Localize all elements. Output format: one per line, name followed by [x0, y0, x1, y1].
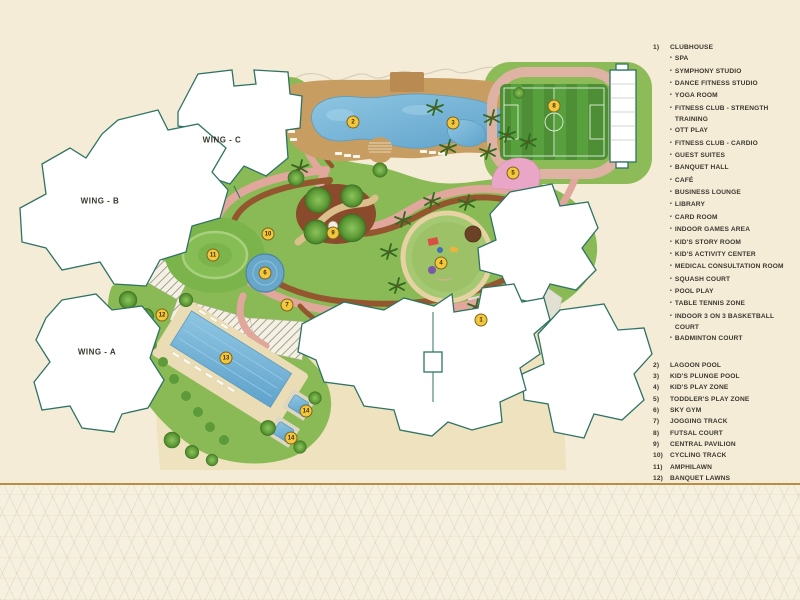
- map-marker-14: 14: [285, 432, 298, 445]
- map-marker-6: 6: [259, 267, 272, 280]
- legend-sub-item: FITNESS CLUB - STRENGTH TRAINING: [653, 103, 799, 126]
- master-plan-page: WING - CWING - BWING - A 123456789101112…: [0, 0, 800, 600]
- map-marker-7: 7: [281, 299, 294, 312]
- map-marker-4: 4: [435, 257, 448, 270]
- legend-item: 9)CENTRAL PAVILION: [653, 439, 799, 450]
- legend-item-number: 9): [653, 439, 670, 450]
- legend-sub-item: SYMPHONY STUDIO: [653, 66, 799, 78]
- legend-sub-item: DANCE FITNESS STUDIO: [653, 78, 799, 90]
- legend-item-number: 8): [653, 428, 670, 439]
- amenities-legend: 1) CLUBHOUSE SPASYMPHONY STUDIODANCE FIT…: [653, 42, 799, 507]
- legend-clubhouse-row: 1) CLUBHOUSE: [653, 42, 799, 53]
- legend-item: 6)SKY GYM: [653, 405, 799, 416]
- legend-item-label: AMPHILAWN: [670, 462, 712, 473]
- legend-item: 8)FUTSAL COURT: [653, 428, 799, 439]
- wing-label: WING - A: [78, 348, 116, 357]
- kids-play-zone-shape: [403, 213, 491, 301]
- legend-sub-item: SPA: [653, 53, 799, 65]
- legend-item-label: TODDLER'S PLAY ZONE: [670, 394, 749, 405]
- map-marker-11: 11: [207, 249, 220, 262]
- legend-item-number: 10): [653, 450, 670, 461]
- futsal-court-shape: [492, 72, 622, 174]
- map-marker-9: 9: [327, 227, 340, 240]
- map-marker-10: 10: [262, 228, 275, 241]
- legend-sub-item: KID'S ACTIVITY CENTER: [653, 249, 799, 261]
- wing-label: WING - C: [203, 136, 242, 145]
- map-marker-3: 3: [447, 117, 460, 130]
- legend-sub-item: CAFÉ: [653, 175, 799, 187]
- legend-item: 10)CYCLING TRACK: [653, 450, 799, 461]
- legend-item-number: 6): [653, 405, 670, 416]
- legend-item-number: 7): [653, 416, 670, 427]
- legend-item-label: SKY GYM: [670, 405, 701, 416]
- map-marker-2: 2: [347, 116, 360, 129]
- legend-item-number: 5): [653, 394, 670, 405]
- legend-item-number: 11): [653, 462, 670, 473]
- legend-item: 2)LAGOON POOL: [653, 360, 799, 371]
- legend-item: 3)KID'S PLUNGE POOL: [653, 371, 799, 382]
- legend-item-label: LAGOON POOL: [670, 360, 721, 371]
- connector-box: [424, 352, 442, 372]
- legend-sub-item: INDOOR GAMES AREA: [653, 224, 799, 236]
- legend-item-number: 4): [653, 382, 670, 393]
- legend-sub-item: MEDICAL CONSULTATION ROOM: [653, 261, 799, 273]
- legend-sub-item: INDOOR 3 ON 3 BASKETBALL COURT: [653, 311, 799, 334]
- legend-item-label: CLUBHOUSE: [670, 42, 713, 53]
- legend-item-label: CENTRAL PAVILION: [670, 439, 736, 450]
- legend-sub-item: POOL PLAY: [653, 286, 799, 298]
- legend-sub-item: FITNESS CLUB - CARDIO: [653, 138, 799, 150]
- legend-item-label: KID'S PLUNGE POOL: [670, 371, 740, 382]
- legend-sub-item: LIBRARY: [653, 199, 799, 211]
- pool-entry-deck: [390, 72, 424, 92]
- map-marker-5: 5: [507, 167, 520, 180]
- clubhouse-sub-list: SPASYMPHONY STUDIODANCE FITNESS STUDIOYO…: [653, 53, 799, 345]
- legend-item: 7)JOGGING TRACK: [653, 416, 799, 427]
- footer-band: THE E-DECK MASTER PLAN OTHER AMENITIES N…: [0, 485, 800, 600]
- legend-item: 11)AMPHILAWN: [653, 462, 799, 473]
- legend-item-label: JOGGING TRACK: [670, 416, 728, 427]
- legend-item-label: FUTSAL COURT: [670, 428, 723, 439]
- legend-item-number: 1): [653, 42, 670, 53]
- legend-sub-item: BANQUET HALL: [653, 162, 799, 174]
- legend-sub-item: KID'S STORY ROOM: [653, 237, 799, 249]
- map-marker-12: 12: [156, 309, 169, 322]
- pool-cove-island: [367, 137, 393, 163]
- legend-sub-item: BADMINTON COURT: [653, 333, 799, 345]
- legend-item: 5)TODDLER'S PLAY ZONE: [653, 394, 799, 405]
- legend-item-label: KID'S PLAY ZONE: [670, 382, 728, 393]
- map-marker-1: 1: [475, 314, 488, 327]
- legend-sub-item: CARD ROOM: [653, 212, 799, 224]
- map-marker-8: 8: [548, 100, 561, 113]
- map-marker-14: 14: [300, 405, 313, 418]
- legend-item-number: 2): [653, 360, 670, 371]
- legend-item: 4)KID'S PLAY ZONE: [653, 382, 799, 393]
- legend-item-label: CYCLING TRACK: [670, 450, 727, 461]
- master-plan-area: WING - CWING - BWING - A 123456789101112…: [0, 0, 800, 483]
- legend-sub-item: GUEST SUITES: [653, 150, 799, 162]
- legend-item-number: 3): [653, 371, 670, 382]
- map-marker-13: 13: [220, 352, 233, 365]
- legend-sub-item: SQUASH COURT: [653, 274, 799, 286]
- legend-sub-item: OTT PLAY: [653, 125, 799, 137]
- wing-label: WING - B: [81, 197, 120, 206]
- legend-sub-item: BUSINESS LOUNGE: [653, 187, 799, 199]
- legend-sub-item: TABLE TENNIS ZONE: [653, 298, 799, 310]
- legend-sub-item: YOGA ROOM: [653, 90, 799, 102]
